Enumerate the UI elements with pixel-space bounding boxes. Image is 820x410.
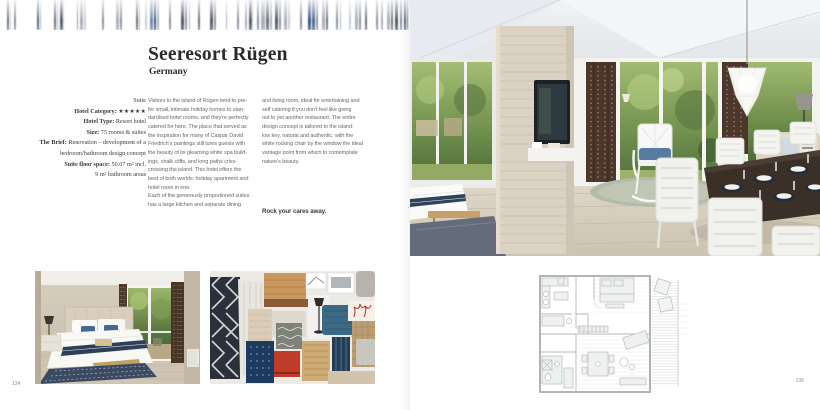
page-subtitle: Germany [149,67,188,77]
living-dining-photo [410,0,820,256]
page-gutter [400,0,410,410]
page-number-right: 135 [796,378,804,384]
page-title: Seeresort Rügen [148,44,288,66]
book-spread: Seeresort Rügen Germany SuiteHotel Categ… [0,0,820,410]
hotel-facts: SuiteHotel Category: ★★★★★Hotel Type: Re… [18,96,146,181]
body-column-2: and living room, ideal for entertaining … [262,97,376,166]
page-number-left: 134 [12,381,20,387]
bedroom-photo [35,271,200,384]
barcode-strip [0,0,410,30]
moodboard-photo [210,271,375,384]
body-column-1: Visitors to the island of Rügen tend to … [148,97,258,210]
floor-plan [532,270,688,398]
tagline: Rock your cares away. [262,208,326,215]
